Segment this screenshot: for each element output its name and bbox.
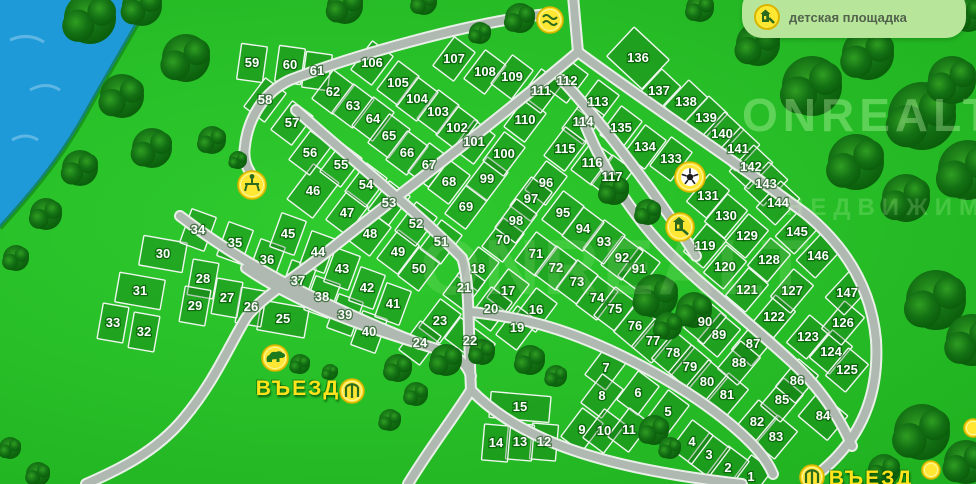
plot-number-61: 61 [310,63,324,78]
plot-number-69: 69 [459,199,473,214]
plot-number-35: 35 [228,235,242,250]
plot-number-7: 7 [602,360,609,375]
plot-number-15: 15 [513,399,527,414]
tree [61,150,98,186]
tree [131,128,172,168]
plot-number-3: 3 [705,447,712,462]
tree [826,134,884,190]
plot-number-129: 129 [736,228,758,243]
tree [0,437,21,459]
plot-number-14: 14 [489,435,504,450]
playground-map-icon [666,213,694,241]
tree [29,198,62,230]
plot-number-33: 33 [106,315,120,330]
tree [410,0,437,15]
plot-number-39: 39 [338,307,352,322]
plot-number-93: 93 [597,234,611,249]
entrance-label-west: ВЪЕЗД [256,377,341,401]
plot-number-81: 81 [720,387,734,402]
plot-number-18: 18 [471,261,485,276]
tree [2,245,29,271]
plot-number-106: 106 [361,55,383,70]
plot-number-78: 78 [666,345,680,360]
plot-number-43: 43 [335,261,349,276]
plot-number-44: 44 [311,244,326,259]
plot-number-5: 5 [664,404,671,419]
plot-number-110: 110 [515,112,536,127]
plot-number-113: 113 [588,94,609,109]
plot-number-46: 46 [306,183,320,198]
plot-number-126: 126 [832,315,854,330]
tree [160,34,210,82]
plot-number-75: 75 [608,301,622,316]
tree [780,56,842,116]
plot-number-23: 23 [433,313,447,328]
tree [926,56,976,104]
plot-number-8: 8 [598,388,605,403]
plot-number-144: 144 [767,195,789,210]
plot-number-131: 131 [697,188,719,203]
plot-number-122: 122 [763,309,785,324]
plot-number-102: 102 [446,120,468,135]
plot-number-54: 54 [359,177,374,192]
plot-number-111: 111 [531,83,551,98]
plot-number-141: 141 [727,141,749,156]
plot-number-112: 112 [557,73,578,88]
marker-icon-2 [922,461,940,479]
plot-number-50: 50 [412,261,426,276]
plot-number-120: 120 [714,259,736,274]
plot-number-20: 20 [484,301,498,316]
plot-number-82: 82 [750,414,764,429]
tree [197,126,226,154]
plot-number-55: 55 [334,157,348,172]
plot-number-16: 16 [529,302,543,317]
marker-icon [964,419,976,437]
plot-number-80: 80 [700,374,714,389]
plot-number-127: 127 [781,283,803,298]
tree [25,462,50,484]
plot-number-104: 104 [406,91,428,106]
plot-number-88: 88 [732,355,746,370]
playground-icon [754,4,780,30]
plot-number-89: 89 [712,327,726,342]
plot-number-12: 12 [537,434,551,449]
plot-number-84: 84 [816,408,831,423]
plot-number-71: 71 [529,246,543,261]
plot-number-76: 76 [628,318,642,333]
plot-number-38: 38 [315,289,329,304]
plot-number-72: 72 [549,260,563,275]
plot-number-25: 25 [276,311,290,326]
plot-number-99: 99 [480,171,494,186]
plot-number-9: 9 [578,422,585,437]
plot-number-134: 134 [634,139,656,154]
plot-number-85: 85 [775,392,789,407]
plot-number-1: 1 [747,469,754,484]
plot-number-53: 53 [382,195,396,210]
plot-number-22: 22 [463,333,477,348]
plot-number-96: 96 [539,175,553,190]
plot-number-26: 26 [244,299,258,314]
tree [378,409,401,431]
plot-number-19: 19 [510,320,524,335]
picnic-area-icon [238,171,266,199]
tree [634,199,661,225]
plot-number-107: 107 [443,51,465,66]
plot-number-124: 124 [820,344,842,359]
plot-number-66: 66 [400,145,414,160]
plot-number-73: 73 [570,274,584,289]
plot-number-4: 4 [688,434,696,449]
plot-number-70: 70 [496,232,510,247]
plot-number-114: 114 [573,114,595,129]
football-field-icon [675,162,705,192]
tree [326,0,363,24]
plot-number-119: 119 [695,238,716,253]
plot-number-121: 121 [736,282,758,297]
plot-number-37: 37 [291,273,305,288]
plot-number-108: 108 [474,64,496,79]
plot-number-77: 77 [646,333,660,348]
plot-number-133: 133 [660,151,682,166]
plot-number-128: 128 [758,252,780,267]
plot-number-136: 136 [627,50,649,65]
plot-number-123: 123 [797,329,819,344]
plot-number-95: 95 [556,205,570,220]
plot-number-87: 87 [746,336,760,351]
legend-playground: детская площадка [742,0,966,38]
plot-number-6: 6 [634,385,641,400]
plot-number-145: 145 [786,224,808,239]
plot-number-68: 68 [442,174,456,189]
tree [403,382,428,406]
plot-number-98: 98 [509,213,523,228]
tree [892,404,950,460]
plot-number-60: 60 [283,57,297,72]
plot-number-47: 47 [340,205,354,220]
plot-number-79: 79 [683,359,697,374]
plot-number-74: 74 [590,290,605,305]
plot-number-28: 28 [196,271,210,286]
plot-number-101: 101 [463,134,485,149]
plot-number-17: 17 [501,283,515,298]
plot-number-64: 64 [366,111,381,126]
tree [228,151,247,169]
tree [383,354,412,382]
plot-number-29: 29 [188,298,202,313]
plot-number-125: 125 [836,362,858,377]
land-plot-map: 1234567891011121314151617181920212223242… [0,0,976,484]
tree [685,0,714,22]
wildlife-icon [262,345,288,371]
plot-number-42: 42 [360,280,374,295]
plot-number-49: 49 [391,244,405,259]
tree [514,345,545,375]
plot-number-83: 83 [769,429,783,444]
tree [942,440,976,484]
plot-number-65: 65 [382,128,396,143]
plot-number-140: 140 [711,126,733,141]
plot-number-30: 30 [156,246,170,261]
plot-number-105: 105 [387,75,409,90]
entrance-gate-icon-2 [800,465,824,484]
entrance-label-east: ВЪЕЗД [829,467,914,484]
plot-number-147: 147 [836,285,858,300]
plot-number-139: 139 [695,110,717,125]
plot-number-94: 94 [576,221,591,236]
tree [289,354,310,374]
plot-number-36: 36 [260,252,274,267]
plot-number-27: 27 [220,290,234,305]
tree [504,3,535,33]
plot-number-90: 90 [698,314,712,329]
plot-number-51: 51 [434,234,448,249]
tree [880,174,930,222]
plot-number-97: 97 [524,191,538,206]
plot-number-48: 48 [363,226,377,241]
plot-number-142: 142 [740,159,762,174]
entrance-gate-icon [340,379,364,403]
plot-number-116: 116 [582,155,603,170]
legend-label: детская площадка [789,10,907,25]
plot-number-10: 10 [597,423,611,438]
plot-number-31: 31 [133,283,147,298]
plot-number-62: 62 [326,84,340,99]
plot-number-63: 63 [346,98,360,113]
plot-number-21: 21 [457,280,471,295]
plot-number-103: 103 [427,104,449,119]
tree [936,140,976,200]
plot-number-115: 115 [555,141,576,156]
plot-number-135: 135 [610,120,632,135]
plot-number-32: 32 [137,324,151,339]
plot-number-59: 59 [245,55,259,70]
plot-number-146: 146 [807,248,829,263]
plot-number-24: 24 [413,335,428,350]
plot-number-41: 41 [386,296,400,311]
plot-number-117: 117 [602,169,623,184]
plot-number-2: 2 [724,460,731,475]
tree [121,0,162,26]
plot-number-40: 40 [362,324,376,339]
plot-number-92: 92 [615,250,629,265]
plot-number-56: 56 [303,145,317,160]
plot-number-86: 86 [790,373,804,388]
plot-number-138: 138 [675,94,697,109]
plot-number-109: 109 [501,69,523,84]
plot-number-11: 11 [622,422,636,437]
stream-icon [537,7,563,33]
plot-number-34: 34 [191,222,206,237]
plot-number-45: 45 [281,226,295,241]
plot-number-137: 137 [648,83,670,98]
plot-number-67: 67 [422,157,436,172]
plot-number-13: 13 [513,434,527,449]
plot-number-52: 52 [409,216,423,231]
plot-number-143: 143 [755,176,777,191]
plot-number-58: 58 [258,92,272,107]
plot-number-130: 130 [715,208,737,223]
plot-map-canvas: 1234567891011121314151617181920212223242… [0,0,976,484]
plot-number-100: 100 [493,146,515,161]
plot-number-57: 57 [285,115,299,130]
tree [544,365,567,387]
plot-number-91: 91 [632,261,646,276]
